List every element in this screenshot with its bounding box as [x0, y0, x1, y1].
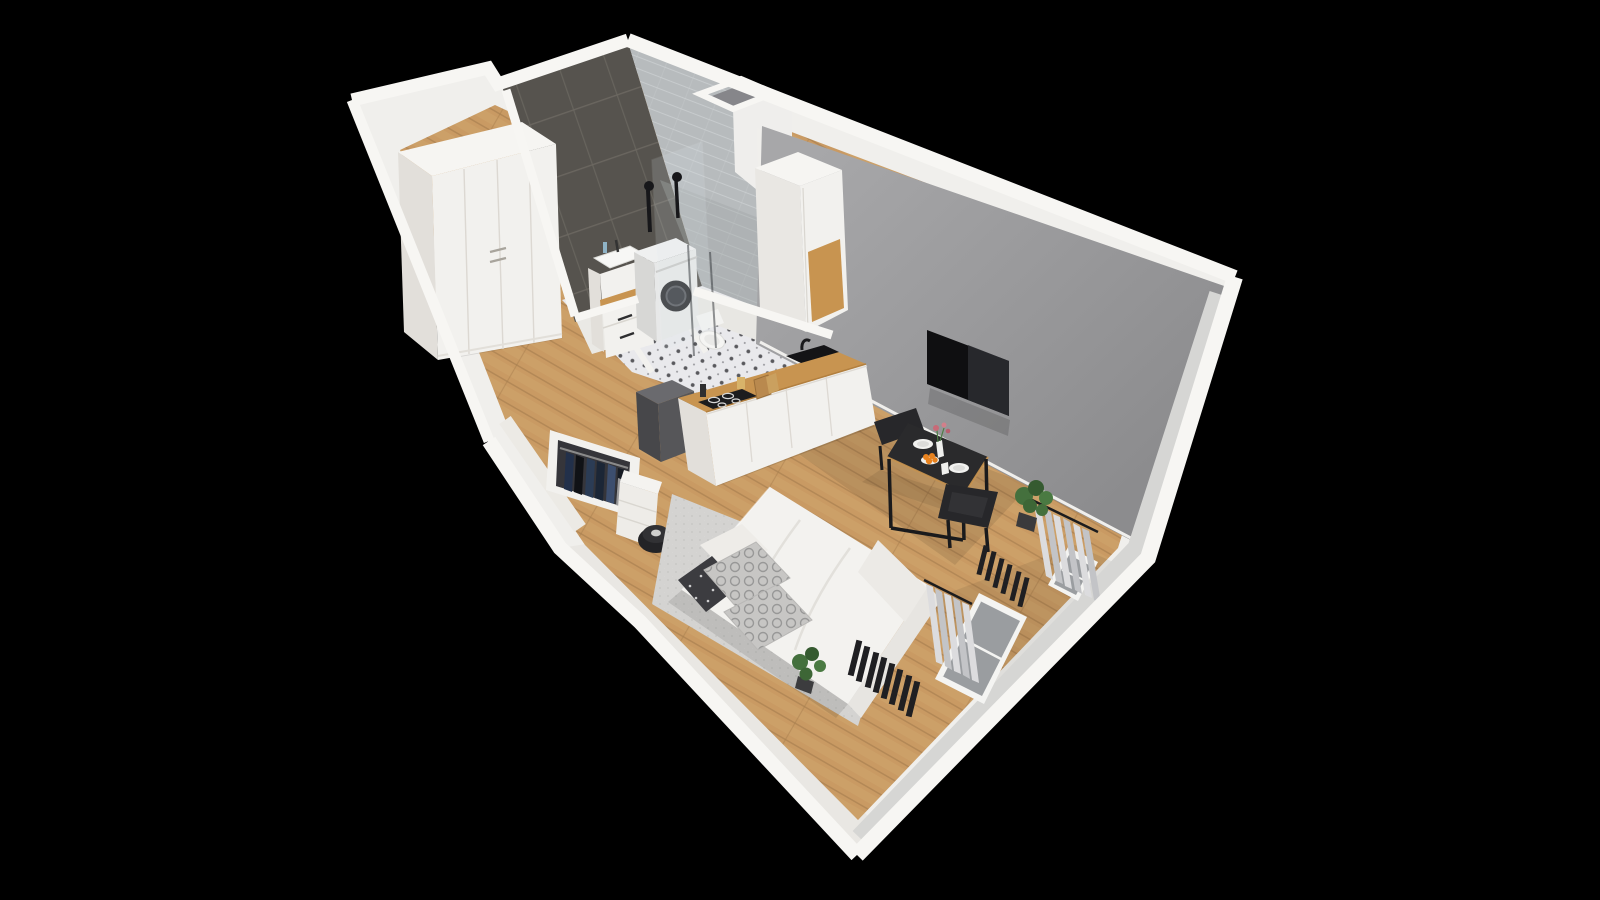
counter-jar — [737, 377, 745, 389]
shower-bar-right — [676, 180, 678, 218]
entry-wardrobe — [398, 122, 562, 360]
tall-kitchen-cabinet — [755, 152, 848, 332]
tall-cabinet-wood-door — [808, 239, 844, 322]
counter-bottle — [700, 384, 706, 397]
pouf-tray — [651, 530, 661, 537]
milk-jug — [941, 462, 949, 475]
toiletry-bottle — [603, 242, 607, 253]
floorplan-3d-render — [0, 0, 1600, 900]
tall-cabinet-side — [755, 168, 806, 332]
shower-glass-panel — [652, 142, 712, 352]
shower-head-left — [644, 181, 654, 191]
shower-bar-left — [648, 190, 650, 232]
render-canvas — [0, 0, 1600, 900]
